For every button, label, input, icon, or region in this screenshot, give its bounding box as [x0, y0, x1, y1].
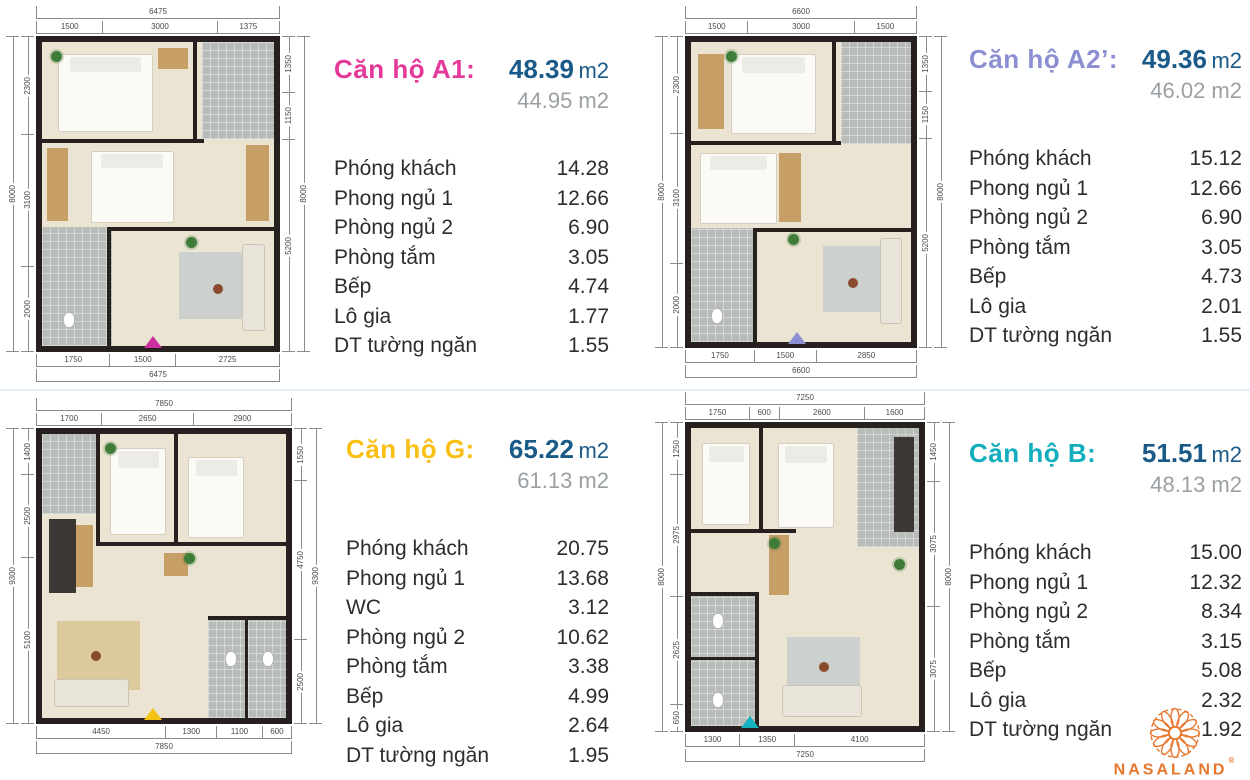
dimension-label: 600 [757, 409, 770, 417]
plan-slot [685, 422, 925, 732]
room-list: Phóng khách14.28Phong ngủ 112.66Phòng ng… [334, 154, 609, 361]
room-value: 14.28 [556, 154, 609, 184]
room-row: Lô gia2.64 [346, 711, 609, 741]
dims-left-total: 8000 [6, 36, 19, 352]
dimension-label: 9300 [9, 565, 17, 587]
dimension-label: 7250 [796, 394, 814, 402]
room-value: 6.90 [1201, 203, 1242, 233]
room-row: Lô gia1.77 [334, 302, 609, 332]
dimension-segment: 6475 [36, 369, 280, 382]
room-row: Phòng ngủ 26.90 [969, 203, 1242, 233]
room-row: Bếp4.74 [334, 272, 609, 302]
room-row: Phòng tắm3.05 [969, 233, 1242, 263]
sofa [242, 244, 265, 331]
floorplan-sheet: 6475 150030001375 8000 230031002000 [0, 0, 1250, 780]
dimension-label: 1150 [285, 105, 293, 126]
bed [188, 457, 244, 539]
sofa [880, 238, 902, 324]
plan-with-dimensions: 6600 150030001500 8000 230031002000 [655, 6, 947, 378]
dimension-segment: 1250 [670, 422, 683, 474]
dimension-label: 2850 [857, 352, 875, 360]
room-row: Phóng khách15.12 [969, 144, 1242, 174]
unit-area-secondary: 61.13 m2 [346, 468, 609, 494]
plan-with-dimensions: 6475 150030001375 8000 230031002000 [6, 6, 310, 382]
dims-left-total: 8000 [655, 422, 668, 732]
half-separator [0, 389, 1250, 391]
shelf [158, 48, 188, 69]
room-value: 12.66 [1189, 174, 1242, 204]
toilet [262, 651, 274, 667]
dims-bottom-total: 7850 [36, 741, 292, 754]
dimension-segment: 5100 [21, 557, 34, 724]
dimension-segment: 2000 [21, 266, 34, 352]
room-row: Phòng ngủ 210.62 [346, 623, 609, 653]
dims-right-sub: 155047502500 [294, 428, 307, 724]
dimension-label: 6475 [149, 371, 167, 379]
room-value: 1.95 [568, 741, 609, 771]
room-row: Phòng ngủ 26.90 [334, 213, 609, 243]
bed [700, 153, 777, 224]
dimension-label: 2600 [813, 409, 831, 417]
interior-wall [691, 657, 755, 660]
room-row: Phòng tắm3.15 [969, 627, 1242, 657]
plan-with-dimensions: 7850 170026502900 9300 140025005100 [6, 398, 322, 754]
dimension-label: 1750 [64, 356, 82, 364]
unit-area-value: 48.39 [509, 54, 574, 84]
dimension-segment: 8000 [655, 422, 668, 732]
bathroom-tile [841, 42, 911, 144]
nasaland-wordmark: NASALAND® [1108, 762, 1242, 778]
dimension-segment: 1550 [294, 428, 307, 480]
unit-header: Căn hộ G: 65.22 m2 [346, 434, 609, 465]
room-row: Phong ngủ 113.68 [346, 564, 609, 594]
sofa [782, 685, 862, 717]
room-list: Phóng khách15.12Phong ngủ 112.66Phòng ng… [969, 144, 1242, 351]
kitchen-counter [76, 525, 93, 587]
room-row: Phòng tắm3.05 [334, 243, 609, 273]
dimension-label: 3075 [930, 658, 938, 680]
dimension-segment: 3100 [21, 134, 34, 266]
dimension-segment: 1150 [282, 92, 295, 140]
dims-right-sub: 135011505200 [282, 36, 295, 352]
dims-top-sub: 170026502900 [36, 413, 292, 426]
unit-header: Căn hộ A1: 48.39 m2 [334, 54, 609, 85]
dimension-segment: 1750 [36, 354, 109, 367]
dimension-label: 2975 [673, 524, 681, 546]
bed [110, 448, 166, 535]
interior-wall [96, 542, 286, 546]
room-value: 3.12 [568, 593, 609, 623]
interior-wall [753, 228, 757, 342]
dims-right-sub: 135011505200 [919, 36, 932, 348]
entrance-marker [144, 336, 162, 348]
dims-right-total: 8000 [942, 422, 955, 732]
dimension-label: 3100 [24, 189, 32, 211]
room-list: Phóng khách20.75Phong ngủ 113.68WC3.12Ph… [346, 534, 609, 770]
plan-zone-g: 7850 170026502900 9300 140025005100 [6, 398, 322, 780]
dimension-label: 8000 [300, 183, 308, 205]
room-label: Phòng tắm [969, 233, 1071, 263]
room-row: Phong ngủ 112.66 [334, 184, 609, 214]
room-value: 1.55 [568, 331, 609, 361]
dimension-segment: 2850 [816, 350, 917, 363]
dimension-segment: 2500 [294, 639, 307, 724]
room-value: 20.75 [556, 534, 609, 564]
dims-bottom-total: 7250 [685, 749, 925, 762]
dimension-segment: 1375 [217, 21, 280, 34]
room-row: Phòng ngủ 28.34 [969, 597, 1242, 627]
dimension-segment: 5200 [919, 138, 932, 348]
room-value: 10.62 [556, 623, 609, 653]
dimension-segment: 2650 [101, 413, 192, 426]
dimension-segment: 2975 [670, 474, 683, 596]
interior-wall [245, 616, 248, 718]
plant [186, 237, 197, 248]
dimension-segment: 1500 [109, 354, 175, 367]
floorplan-drawing-a2 [685, 36, 917, 348]
dimension-label: 1100 [231, 728, 248, 736]
dimension-label: 3000 [151, 23, 169, 31]
room-row: WC3.12 [346, 593, 609, 623]
room-label: DT tường ngăn [334, 331, 477, 361]
wardrobe [47, 148, 68, 221]
dimension-segment: 2000 [670, 263, 683, 348]
room-label: Lô gia [969, 686, 1026, 716]
dimension-label: 1750 [711, 352, 729, 360]
room-label: Phong ngủ 1 [969, 568, 1088, 598]
dimension-label: 2300 [24, 75, 32, 97]
dimension-segment: 1300 [165, 726, 216, 739]
dimension-label: 5200 [285, 235, 293, 257]
room-row: Phòng tắm3.38 [346, 652, 609, 682]
room-value: 3.05 [568, 243, 609, 273]
room-row: Phóng khách14.28 [334, 154, 609, 184]
room-row: Bếp4.73 [969, 262, 1242, 292]
nasaland-logo-icon [1146, 704, 1204, 762]
dimension-segment: 2600 [779, 407, 865, 420]
toilet [712, 613, 724, 629]
room-row: Lô gia2.01 [969, 292, 1242, 322]
dimension-label: 2500 [297, 671, 305, 693]
dims-bottom-sub: 175015002850 [685, 350, 917, 363]
dimension-segment: 8000 [297, 36, 310, 352]
dims-right-total: 8000 [297, 36, 310, 352]
dimension-segment: 2500 [21, 474, 34, 556]
interior-wall [691, 529, 796, 533]
dims-left-sub: 230031002000 [21, 36, 34, 352]
unit-area-value: 51.51 [1142, 438, 1207, 468]
dimension-segment: 3075 [927, 606, 940, 732]
room-label: Phòng tắm [346, 652, 448, 682]
unit-area-unit: m2 [1211, 48, 1242, 73]
toilet [711, 308, 723, 324]
room-value: 13.68 [556, 564, 609, 594]
room-label: Phong ngủ 1 [346, 564, 465, 594]
dimension-label: 1550 [297, 444, 305, 466]
room-label: Phòng ngủ 2 [334, 213, 453, 243]
dimension-segment: 1350 [739, 734, 794, 747]
room-row: Phong ngủ 112.32 [969, 568, 1242, 598]
dimension-label: 2000 [673, 294, 681, 316]
dims-left-sub: 140025005100 [21, 428, 34, 724]
plan-slot [36, 36, 280, 352]
interior-wall [107, 227, 111, 346]
bathroom-tile [202, 42, 274, 139]
dimension-segment: 8000 [934, 36, 947, 348]
dims-left-total: 8000 [655, 36, 668, 348]
room-label: Lô gia [334, 302, 391, 332]
room-value: 1.77 [568, 302, 609, 332]
dimension-segment: 1600 [864, 407, 925, 420]
dimension-segment: 1500 [36, 21, 102, 34]
room-value: 15.12 [1189, 144, 1242, 174]
room-row: Phóng khách20.75 [346, 534, 609, 564]
dims-right-sub: 145030753075 [927, 422, 940, 732]
dimension-segment: 1150 [919, 91, 932, 138]
dimension-segment: 7850 [36, 741, 292, 754]
kitchen-appliances [894, 437, 915, 532]
room-label: Bếp [334, 272, 371, 302]
dimension-segment: 650 [670, 704, 683, 732]
dimension-segment: 3000 [747, 21, 853, 34]
unit-panel-a1: 6475 150030001375 8000 230031002000 [0, 0, 625, 390]
dimension-segment: 1400 [21, 428, 34, 474]
unit-area-value: 49.36 [1142, 44, 1207, 74]
dimension-label: 1500 [134, 356, 152, 364]
room-label: Phòng ngủ 2 [969, 597, 1088, 627]
room-label: Phòng ngủ 2 [346, 623, 465, 653]
dimension-segment: 9300 [6, 428, 19, 724]
unit-panel-g: 7850 170026502900 9300 140025005100 [0, 390, 625, 780]
room-value: 12.66 [556, 184, 609, 214]
bed [778, 443, 835, 528]
dimension-segment: 1500 [854, 21, 917, 34]
dimension-label: 4450 [92, 728, 110, 736]
dimension-label: 8000 [945, 566, 953, 588]
dimension-segment: 8000 [6, 36, 19, 352]
dimension-segment: 1500 [754, 350, 816, 363]
sofa [54, 679, 129, 707]
dimension-label: 1300 [704, 736, 722, 744]
dimension-segment: 600 [262, 726, 292, 739]
dimension-label: 3000 [792, 23, 810, 31]
unit-area-secondary: 44.95 m2 [334, 88, 609, 114]
interior-wall [691, 592, 755, 596]
room-row: Bếp5.08 [969, 656, 1242, 686]
registered-mark: ® [1228, 756, 1237, 765]
dimension-segment: 4100 [794, 734, 925, 747]
room-label: Phong ngủ 1 [969, 174, 1088, 204]
dimension-label: 600 [270, 728, 283, 736]
table [91, 651, 101, 661]
room-row: Phong ngủ 112.66 [969, 174, 1242, 204]
room-value: 3.05 [1201, 233, 1242, 263]
unit-area-unit: m2 [1211, 442, 1242, 467]
bed [702, 443, 750, 525]
unit-area: 65.22 m2 [509, 434, 609, 465]
room-label: Lô gia [969, 292, 1026, 322]
unit-area-unit: m2 [578, 438, 609, 463]
dims-bottom-sub: 445013001100600 [36, 726, 292, 739]
room-label: DT tường ngăn [969, 321, 1112, 351]
plant [105, 443, 116, 454]
unit-title: Căn hộ A1: [334, 54, 475, 85]
interior-wall [42, 139, 204, 143]
dimension-segment: 9300 [309, 428, 322, 724]
room-label: Phòng ngủ 2 [969, 203, 1088, 233]
interior-wall [691, 141, 841, 145]
plan-zone-a2: 6600 150030001500 8000 230031002000 [655, 6, 947, 390]
plant [769, 538, 780, 549]
room-value: 3.15 [1201, 627, 1242, 657]
dimension-label: 2625 [673, 639, 681, 661]
dimension-segment: 6600 [685, 6, 917, 19]
floorplan-drawing-b [685, 422, 925, 732]
plan-slot [685, 36, 917, 348]
room-value: 1.55 [1201, 321, 1242, 351]
dims-top-sub: 150030001375 [36, 21, 280, 34]
unit-specs-a1: Căn hộ A1: 48.39 m2 44.95 m2 Phóng khách… [310, 6, 625, 390]
dimension-label: 1350 [285, 53, 293, 75]
dimension-segment: 1350 [282, 36, 295, 92]
dims-left-sub: 125029752625650 [670, 422, 683, 732]
dimension-label: 2650 [139, 415, 157, 423]
dimension-label: 2500 [24, 505, 32, 527]
dimension-label: 7850 [155, 743, 173, 751]
unit-area-secondary: 46.02 m2 [969, 78, 1242, 104]
room-value: 4.74 [568, 272, 609, 302]
toilet [63, 312, 75, 328]
kitchen-counter [246, 145, 269, 221]
unit-header: Căn hộ A2’: 49.36 m2 [969, 44, 1242, 75]
interior-wall [755, 592, 759, 726]
plan-zone-a1: 6475 150030001375 8000 230031002000 [6, 6, 310, 390]
dimension-label: 2725 [219, 356, 237, 364]
room-label: Bếp [969, 262, 1006, 292]
dimension-label: 1350 [758, 736, 776, 744]
dimension-label: 6600 [792, 367, 810, 375]
floorplan-drawing-a1 [36, 36, 280, 352]
dimension-segment: 2725 [175, 354, 280, 367]
dimension-segment: 1500 [685, 21, 747, 34]
room-value: 6.90 [568, 213, 609, 243]
dimension-label: 650 [673, 709, 681, 726]
dims-right-total: 9300 [309, 428, 322, 724]
dimension-segment: 4450 [36, 726, 165, 739]
dimension-segment: 600 [749, 407, 779, 420]
unit-area: 51.51 m2 [1142, 438, 1242, 469]
dims-top-sub: 150030001500 [685, 21, 917, 34]
dims-bottom-sub: 130013504100 [685, 734, 925, 747]
bed [731, 54, 817, 134]
room-value: 8.34 [1201, 597, 1242, 627]
dimension-segment: 3100 [670, 133, 683, 263]
dimension-segment: 7250 [685, 749, 925, 762]
unit-area-unit: m2 [578, 58, 609, 83]
interior-wall [753, 228, 911, 232]
dimension-segment: 1350 [919, 36, 932, 91]
room-value: 4.99 [568, 682, 609, 712]
dimension-segment: 1300 [685, 734, 739, 747]
bed [91, 151, 174, 223]
dimension-label: 1150 [922, 104, 930, 125]
dimension-label: 6475 [149, 8, 167, 16]
dims-top-total: 7850 [36, 398, 292, 411]
interior-wall [96, 434, 100, 542]
entrance-marker [144, 708, 162, 720]
unit-area: 48.39 m2 [509, 54, 609, 85]
dimension-label: 1500 [708, 23, 726, 31]
bed [58, 54, 153, 132]
dims-bottom-total: 6600 [685, 365, 917, 378]
dimension-label: 1700 [60, 415, 78, 423]
bathroom-tile [42, 227, 112, 346]
dimension-label: 8000 [658, 181, 666, 203]
dimension-label: 1250 [673, 438, 681, 460]
dimension-segment: 5200 [282, 139, 295, 352]
room-label: Phóng khách [334, 154, 457, 184]
dimension-label: 1375 [239, 23, 257, 31]
dimension-label: 1750 [708, 409, 726, 417]
unit-title: Căn hộ B: [969, 438, 1096, 469]
dimension-label: 7850 [155, 400, 173, 408]
toilet [712, 692, 724, 708]
room-row: Bếp4.99 [346, 682, 609, 712]
room-label: DT tường ngăn [346, 741, 489, 771]
dimension-label: 1500 [876, 23, 894, 31]
dimension-label: 9300 [312, 565, 320, 587]
dims-right-total: 8000 [934, 36, 947, 348]
dimension-label: 1600 [886, 409, 904, 417]
room-value: 4.73 [1201, 262, 1242, 292]
entrance-marker [788, 332, 806, 344]
dimension-segment: 1750 [685, 350, 754, 363]
dims-top-total: 7250 [685, 392, 925, 405]
dimension-segment: 6475 [36, 6, 280, 19]
toilet [225, 651, 237, 667]
dims-bottom-sub: 175015002725 [36, 354, 280, 367]
room-value: 3.38 [568, 652, 609, 682]
plant [894, 559, 905, 570]
dimension-segment: 6600 [685, 365, 917, 378]
bathroom-tile [42, 434, 96, 514]
plan-slot [36, 428, 292, 724]
unit-specs-a2: Căn hộ A2’: 49.36 m2 46.02 m2 Phóng khác… [947, 6, 1250, 390]
dimension-label: 5100 [24, 629, 32, 651]
dimension-label: 3100 [673, 187, 681, 209]
interior-wall [174, 434, 178, 542]
dimension-segment: 2625 [670, 596, 683, 704]
room-label: Phòng tắm [334, 243, 436, 273]
unit-specs-g: Căn hộ G: 65.22 m2 61.13 m2 Phóng khách2… [322, 398, 625, 780]
room-label: Phóng khách [346, 534, 469, 564]
dimension-segment: 1100 [216, 726, 262, 739]
dimension-segment: 1450 [927, 422, 940, 481]
dimension-label: 1500 [61, 23, 79, 31]
unit-title: Căn hộ A2’: [969, 44, 1118, 75]
dims-top-total: 6600 [685, 6, 917, 19]
room-value: 5.08 [1201, 656, 1242, 686]
room-value: 2.01 [1201, 292, 1242, 322]
room-value: 12.32 [1189, 568, 1242, 598]
dimension-segment: 1700 [36, 413, 101, 426]
dimension-segment: 3075 [927, 481, 940, 606]
dimension-label: 2000 [24, 298, 32, 320]
room-row: DT tường ngăn1.55 [334, 331, 609, 361]
dimension-segment: 1750 [685, 407, 749, 420]
dimension-label: 6600 [792, 8, 810, 16]
dimension-segment: 2900 [193, 413, 292, 426]
